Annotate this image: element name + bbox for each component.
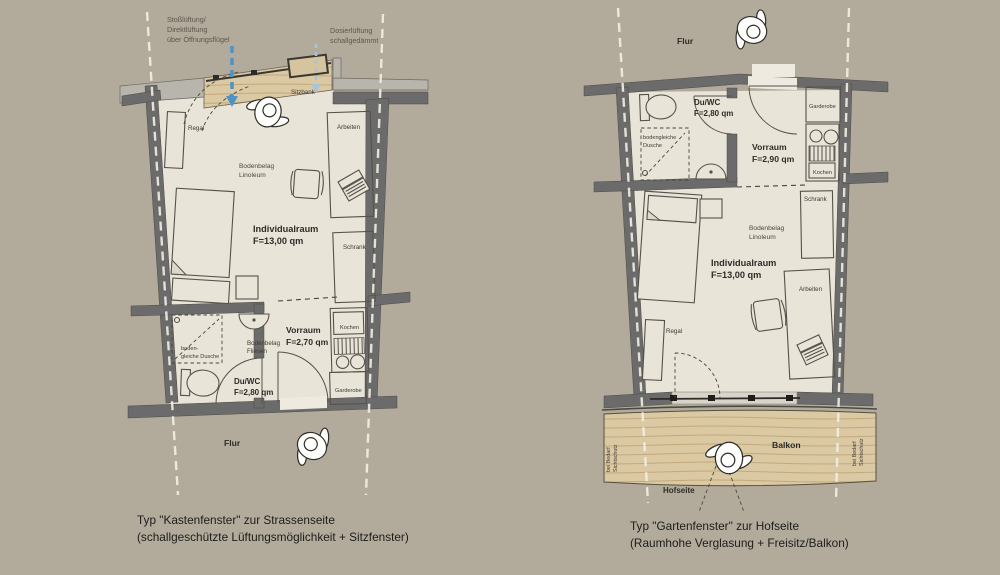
bed xyxy=(637,191,701,303)
caption-kastenfenster: Typ "Kastenfenster" zur Strassenseite xyxy=(137,513,335,527)
label-schrank: Schrank xyxy=(804,196,828,203)
sill-wall-left xyxy=(604,392,672,408)
label-hofseite: Hofseite xyxy=(663,486,695,495)
shelf-regal xyxy=(165,112,186,169)
label-duwc-area: F=2,80 qm xyxy=(694,109,733,118)
label-individualraum-area: F=13,00 qm xyxy=(253,236,303,246)
glazing-fitting xyxy=(748,395,755,401)
label-fliesen: Bodenbelag xyxy=(247,340,281,347)
label-sichtschutz: Sichtschutz xyxy=(859,438,865,466)
label-fliesen: Fliesen xyxy=(247,348,268,355)
label-regal: Regal xyxy=(666,328,682,335)
entry-opening xyxy=(748,76,797,90)
label-bodenbelag: Bodenbelag xyxy=(749,225,785,232)
label-duwc: Du/WC xyxy=(234,377,260,386)
right-floorplan: Flur Du/WC F=2,80 qm Garderobe bodenglei… xyxy=(584,2,888,550)
glazing-fitting xyxy=(708,395,715,401)
label-duwc: Du/WC xyxy=(694,98,720,107)
window-fitting xyxy=(251,70,257,75)
label-arbeiten: Arbeiten xyxy=(337,124,361,131)
sill-wall-right xyxy=(797,392,873,406)
entry-threshold xyxy=(752,64,795,77)
label-vorraum: Vorraum xyxy=(286,325,321,335)
label-regal: Regal xyxy=(188,125,204,132)
label-dusche: gleiche Dusche xyxy=(181,354,219,360)
label-kochen: Kochen xyxy=(340,325,359,331)
annotation-stosslueftung: über Öffnungsflügel xyxy=(167,35,230,44)
label-kochen: Kochen xyxy=(813,170,832,176)
label-bodenbelag: Bodenbelag xyxy=(239,163,275,170)
floorplan-canvas: Stoßlüftung/ Direktlüftung über Öffnungs… xyxy=(0,0,1000,575)
label-vorraum-area: F=2,90 qm xyxy=(752,154,795,164)
label-schrank: Schrank xyxy=(343,244,367,251)
dosierlueftung-box xyxy=(288,55,328,77)
label-flur: Flur xyxy=(677,36,694,46)
label-bodenbelag: Linoleum xyxy=(239,172,266,179)
label-dusche: bodengleiche xyxy=(643,135,676,141)
label-sichtschutz: bei Bedarf xyxy=(852,441,858,466)
label-duwc-area: F=2,80 qm xyxy=(234,388,273,397)
annotation-stosslueftung: Direktlüftung xyxy=(167,25,207,34)
left-floorplan: Stoßlüftung/ Direktlüftung über Öffnungs… xyxy=(120,12,428,544)
label-bodenbelag: Linoleum xyxy=(749,234,776,241)
label-individualraum: Individualraum xyxy=(253,224,318,234)
label-individualraum: Individualraum xyxy=(711,258,776,268)
glazing-fitting xyxy=(670,395,677,401)
label-garderobe: Garderobe xyxy=(335,388,362,394)
window-fitting xyxy=(213,75,219,80)
label-vorraum: Vorraum xyxy=(752,142,787,152)
nightstand xyxy=(236,276,258,299)
person-walking-flur xyxy=(287,418,338,475)
bed xyxy=(170,188,236,303)
wing-wall-mid-right xyxy=(843,172,888,184)
bath-side-wall xyxy=(727,134,737,182)
shelf-regal xyxy=(642,320,664,381)
nightstand xyxy=(700,199,722,218)
label-individualraum-area: F=13,00 qm xyxy=(711,270,761,280)
label-flur: Flur xyxy=(224,438,241,448)
label-sitzbank: Sitzbank xyxy=(291,89,316,96)
label-sichtschutz: Sichtschutz xyxy=(613,444,619,472)
label-arbeiten: Arbeiten xyxy=(799,286,823,293)
annotation-dosierlueftung: schallgedämmt xyxy=(330,36,378,45)
label-dusche: Dusche xyxy=(643,143,662,149)
balcony-edge-line xyxy=(602,406,877,410)
label-sichtschutz: bei Bedarf xyxy=(606,447,612,472)
label-garderobe: Garderobe xyxy=(809,104,836,110)
person-walking-flur xyxy=(728,2,776,58)
label-balkon: Balkon xyxy=(772,440,801,450)
annotation-dosierlueftung: Dosierlüftung xyxy=(330,26,372,35)
caption-gartenfenster: (Raumhohe Verglasung + Freisitz/Balkon) xyxy=(630,536,849,550)
toilet xyxy=(181,369,220,396)
annotation-stosslueftung: Stoßlüftung/ xyxy=(167,15,206,24)
label-vorraum-area: F=2,70 qm xyxy=(286,337,329,347)
glazing-fitting xyxy=(786,395,793,401)
label-dusche: boden- xyxy=(181,346,199,352)
caption-gartenfenster: Typ "Gartenfenster" zur Hofseite xyxy=(630,519,799,533)
doorway-opening xyxy=(280,396,327,410)
caption-kastenfenster: (schallgeschützte Lüftungsmöglichkeit + … xyxy=(137,530,409,544)
